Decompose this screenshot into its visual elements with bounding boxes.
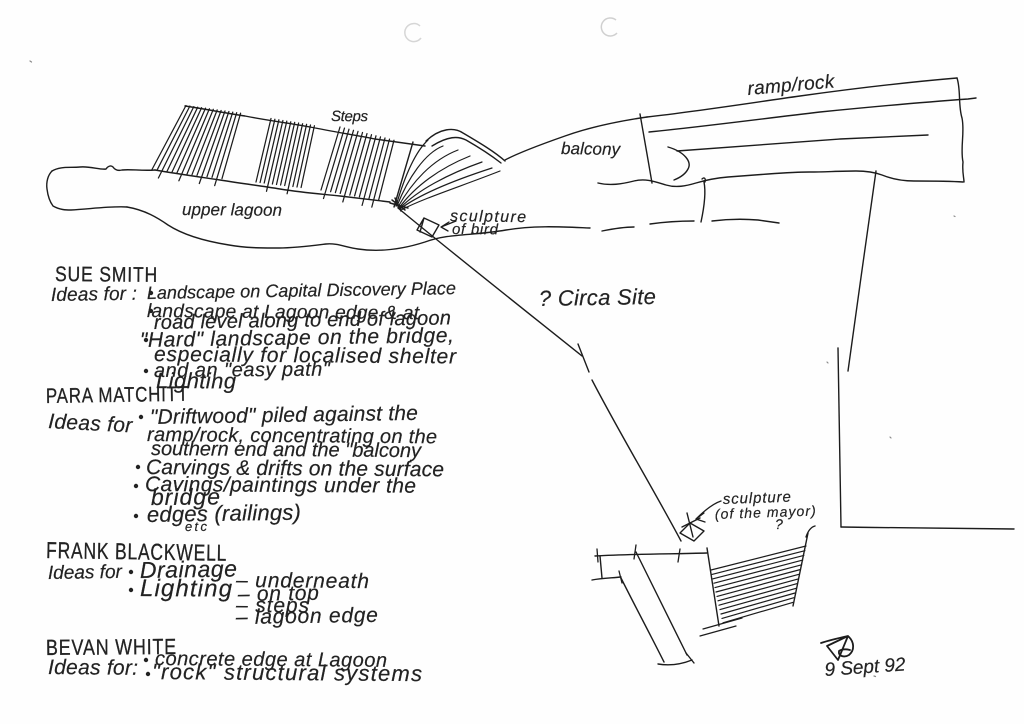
svg-text:Steps: Steps — [331, 108, 369, 125]
svg-text:Ideas for: Ideas for — [48, 562, 123, 584]
svg-text:? Circa Site: ? Circa Site — [539, 284, 656, 311]
svg-text:PARA MATCHITT: PARA MATCHITT — [46, 383, 189, 408]
svg-text:Lighting: Lighting — [140, 575, 233, 603]
svg-text:9 Sept 92: 9 Sept 92 — [824, 654, 907, 681]
svg-text:(of the mayor): (of the mayor) — [715, 502, 816, 522]
svg-text:"rock" structural systems: "rock" structural systems — [152, 659, 422, 686]
svg-text:Ideas for:: Ideas for: — [48, 656, 138, 680]
svg-text:– lagoon edge: – lagoon edge — [235, 604, 378, 629]
svg-text:etc: etc — [185, 519, 208, 534]
svg-text:ramp/rock: ramp/rock — [747, 71, 837, 100]
svg-text:upper lagoon: upper lagoon — [182, 200, 282, 220]
svg-text:Ideas for :: Ideas for : — [51, 284, 137, 306]
svg-text:edges (railings): edges (railings) — [147, 500, 301, 527]
svg-text:balcony: balcony — [561, 139, 622, 159]
svg-text:?: ? — [775, 516, 783, 532]
svg-text:Ideas for: Ideas for — [48, 410, 134, 437]
svg-text:of bird: of bird — [452, 221, 499, 238]
svg-text:Landscape on Capital Discovery: Landscape on Capital Discovery Place — [147, 278, 456, 303]
